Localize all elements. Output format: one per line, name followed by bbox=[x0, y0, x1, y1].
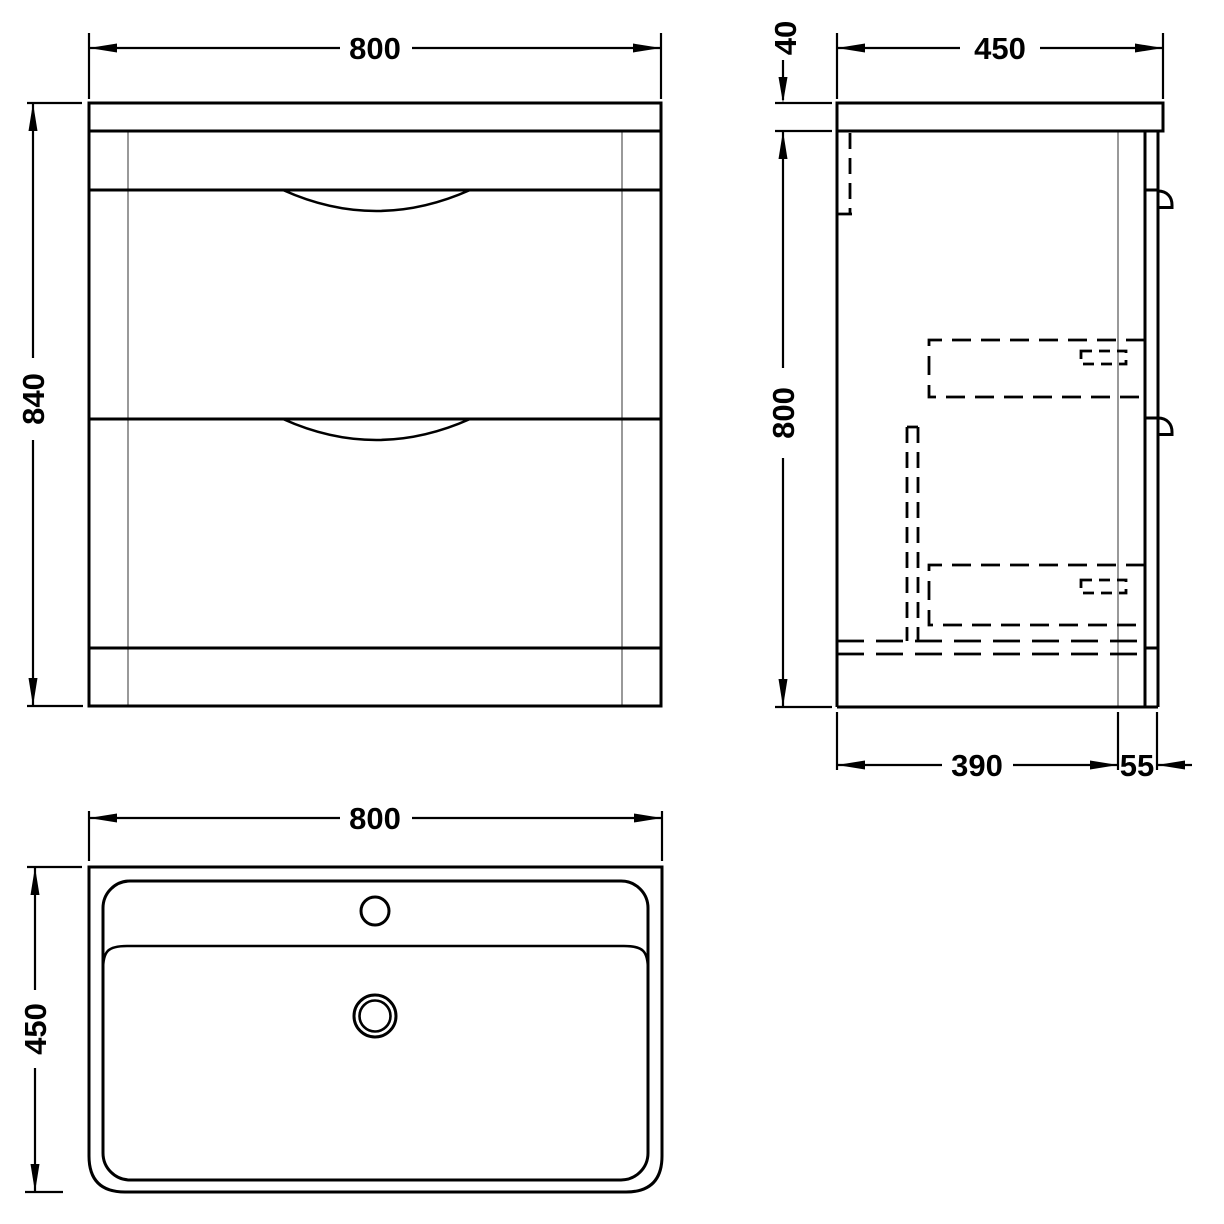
front-width-label: 800 bbox=[349, 31, 401, 66]
drawer-box-hidden-top bbox=[929, 340, 1145, 397]
drawer-handle-recess-top bbox=[283, 190, 470, 211]
drawer-runner-hidden-bottom bbox=[1081, 580, 1126, 593]
dim-side-base: 390 55 bbox=[837, 712, 1192, 783]
arrowhead bbox=[89, 44, 117, 53]
side-view bbox=[837, 103, 1172, 707]
arrowhead bbox=[29, 103, 38, 131]
arrowhead bbox=[29, 678, 38, 706]
waste-pipe-hidden bbox=[907, 427, 918, 641]
arrowhead bbox=[1090, 761, 1118, 770]
arrowhead bbox=[31, 867, 40, 895]
front-view bbox=[89, 103, 661, 706]
arrowhead bbox=[1135, 44, 1163, 53]
arrowhead bbox=[634, 814, 662, 823]
dim-side-height: 800 bbox=[766, 131, 832, 707]
base-panel-hidden bbox=[837, 641, 1145, 654]
waste-hole-inner bbox=[360, 1001, 391, 1032]
bowl-front-edge bbox=[103, 946, 648, 970]
dim-front-height: 840 bbox=[16, 103, 83, 706]
drawer-handle-profile-bottom bbox=[1158, 418, 1172, 435]
arrowhead bbox=[779, 131, 788, 159]
arrowhead bbox=[779, 679, 788, 707]
plan-depth-label: 450 bbox=[18, 1003, 53, 1055]
tap-hole bbox=[361, 897, 389, 925]
vanity-unit-technical-drawing: 800 840 40 bbox=[0, 0, 1224, 1224]
front-height-label: 840 bbox=[16, 373, 51, 425]
drawer-handle-recess-bottom bbox=[283, 419, 470, 440]
arrowhead bbox=[837, 761, 865, 770]
arrowhead bbox=[837, 44, 865, 53]
arrowhead bbox=[1157, 761, 1185, 770]
arrowhead bbox=[779, 77, 788, 103]
countertop-front-outline bbox=[89, 103, 661, 131]
plan-width-label: 800 bbox=[349, 801, 401, 836]
drawer-handle-profile-top bbox=[1158, 191, 1172, 208]
basin-outer-edge bbox=[89, 867, 662, 1192]
dim-plan-depth: 450 bbox=[18, 867, 82, 1192]
basin-hidden-outline bbox=[837, 133, 852, 214]
side-counter-thickness-label: 40 bbox=[768, 21, 803, 55]
side-height-label: 800 bbox=[766, 387, 801, 439]
technical-drawing-canvas: 800 840 40 bbox=[0, 0, 1224, 1224]
dim-plan-width: 800 bbox=[89, 801, 662, 861]
side-base-depth-label: 390 bbox=[951, 748, 1003, 783]
drawer-box-hidden-bottom bbox=[929, 565, 1145, 625]
arrowhead bbox=[89, 814, 117, 823]
dim-side-depth: 450 bbox=[837, 31, 1163, 99]
plan-view bbox=[89, 867, 662, 1192]
dim-front-width: 800 bbox=[89, 31, 661, 99]
drawer-runner-hidden-top bbox=[1081, 351, 1126, 364]
dim-side-counter-thickness: 40 bbox=[768, 21, 832, 131]
countertop-side-outline bbox=[837, 103, 1163, 131]
side-front-offset-label: 55 bbox=[1120, 748, 1154, 783]
arrowhead bbox=[633, 44, 661, 53]
side-depth-label: 450 bbox=[974, 31, 1026, 66]
arrowhead bbox=[31, 1164, 40, 1192]
